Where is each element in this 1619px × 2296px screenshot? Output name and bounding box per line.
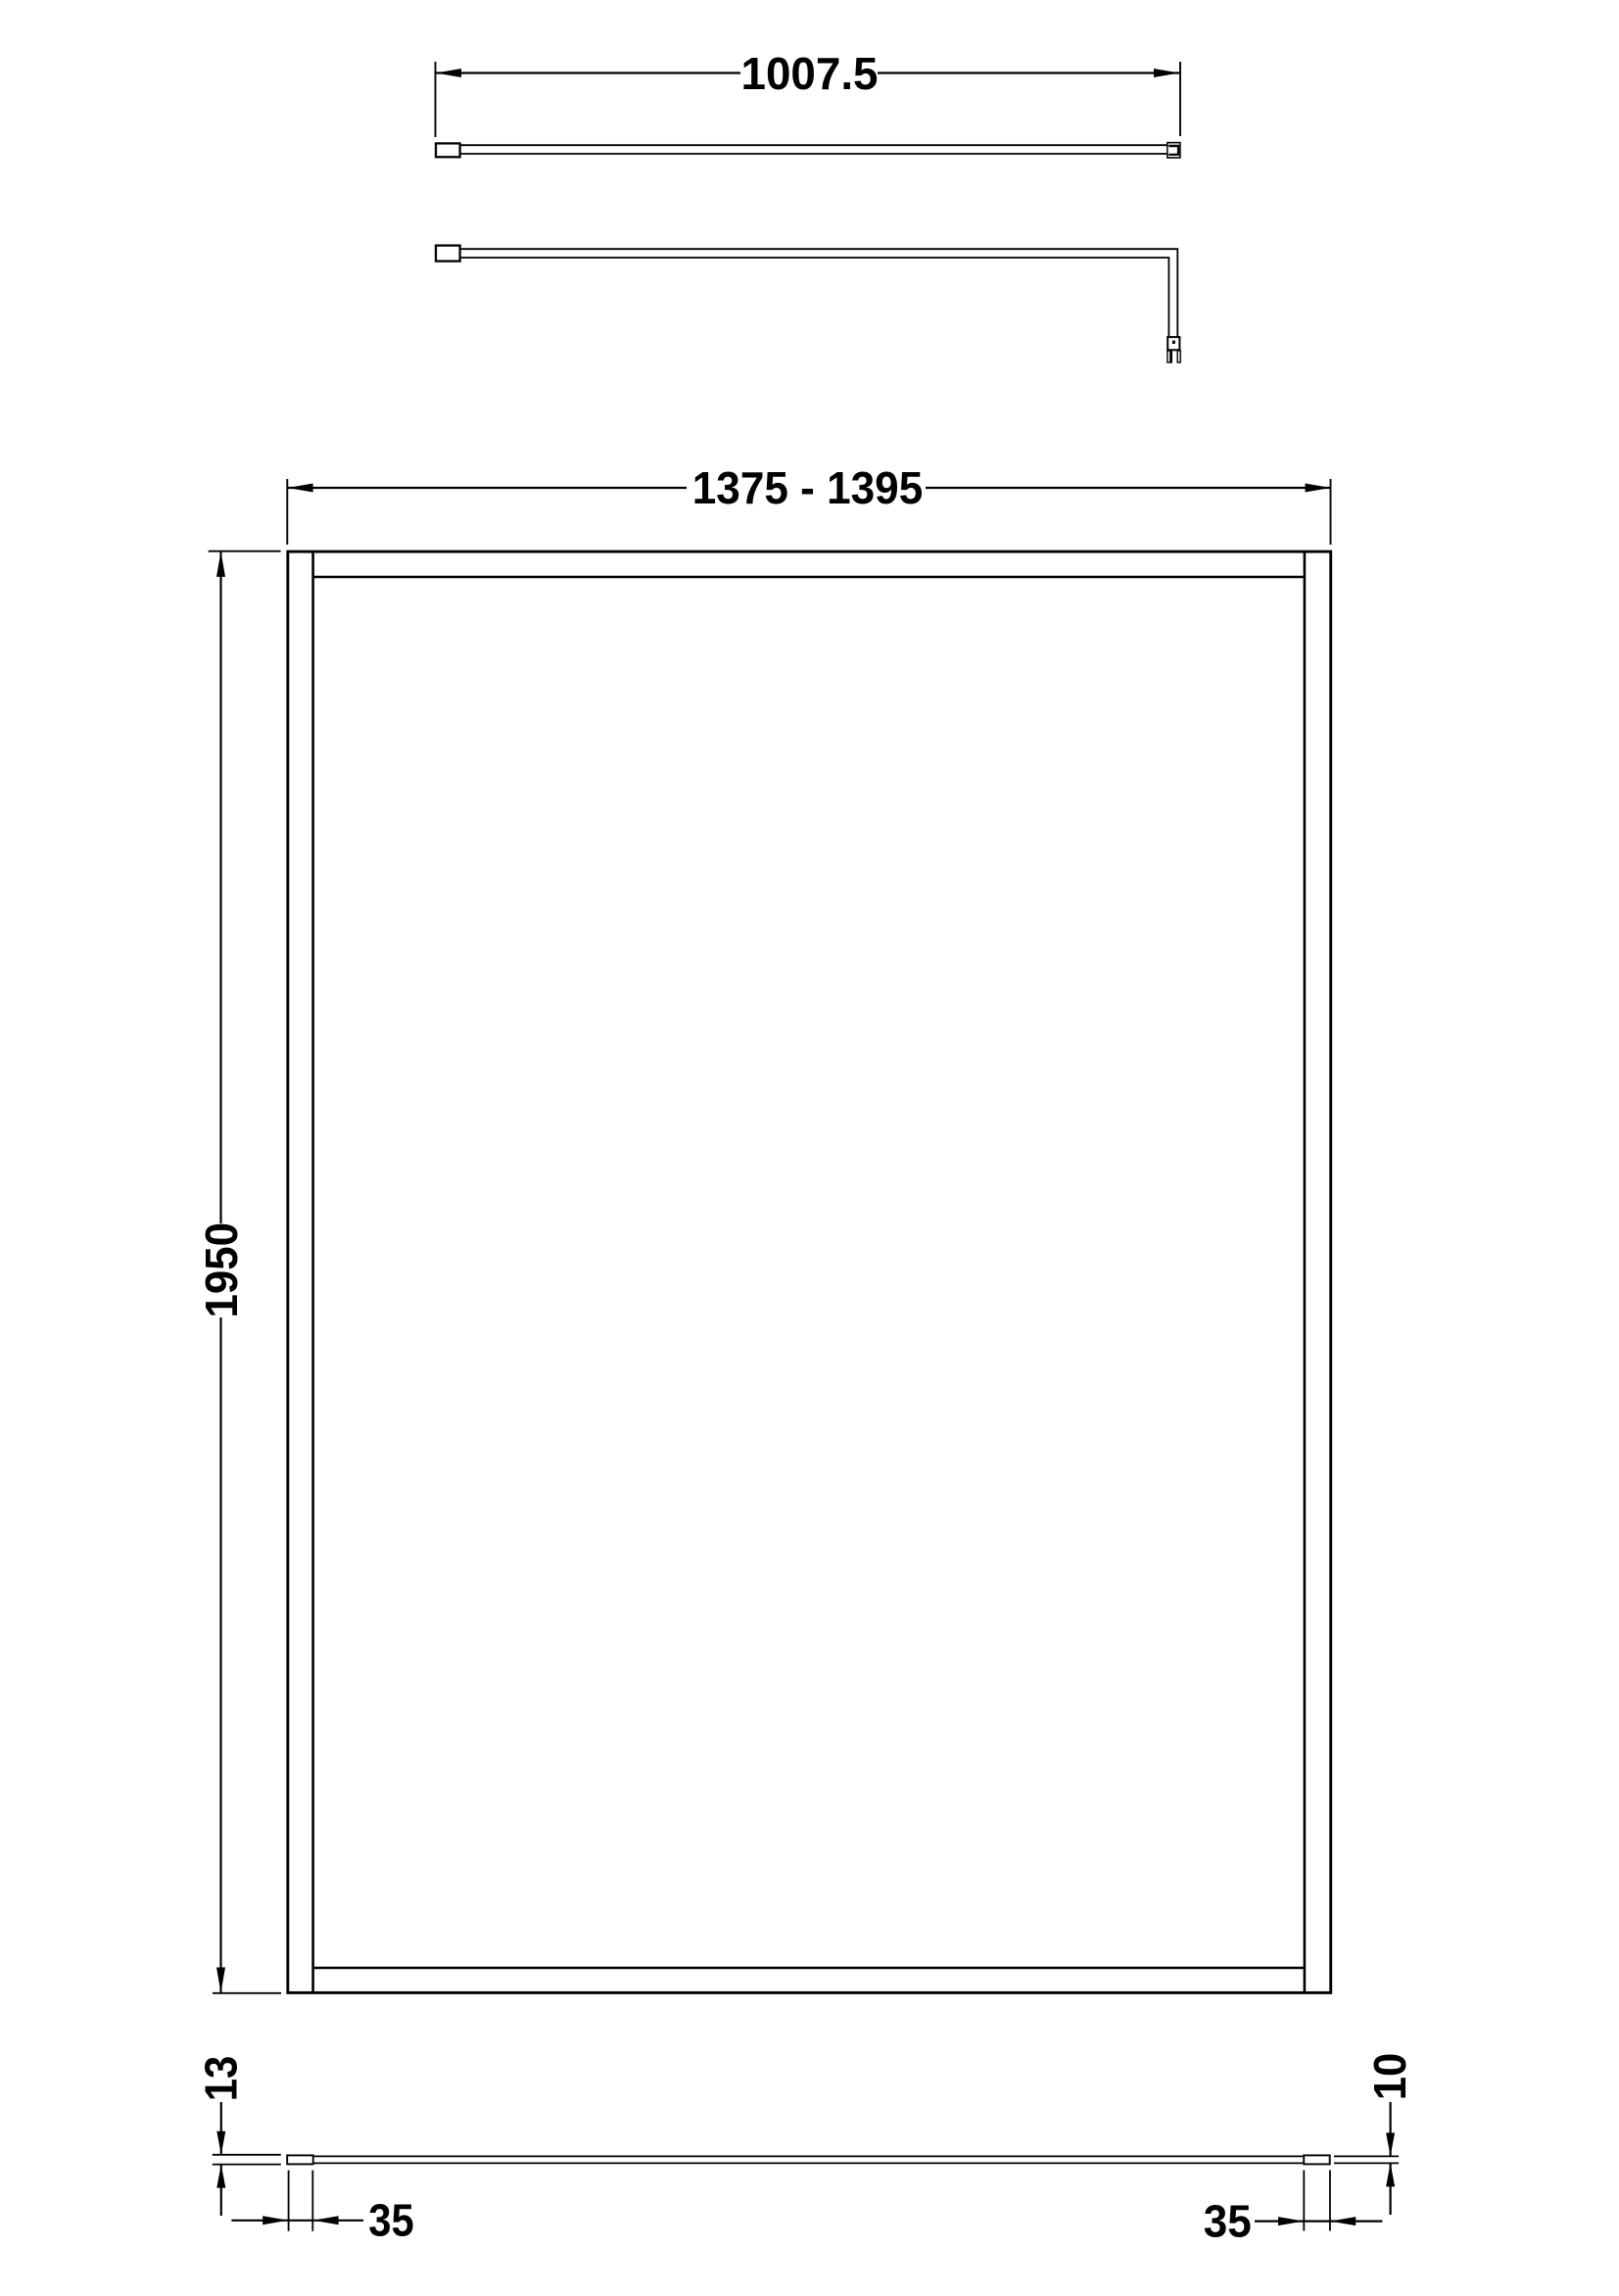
svg-text:1375 - 1395: 1375 - 1395	[692, 462, 924, 513]
svg-text:1007.5: 1007.5	[741, 48, 879, 99]
svg-text:10: 10	[1364, 2053, 1415, 2101]
svg-text:13: 13	[196, 2056, 247, 2102]
svg-text:1950: 1950	[196, 1222, 247, 1318]
svg-text:35: 35	[368, 2195, 414, 2246]
svg-text:35: 35	[1204, 2196, 1252, 2247]
